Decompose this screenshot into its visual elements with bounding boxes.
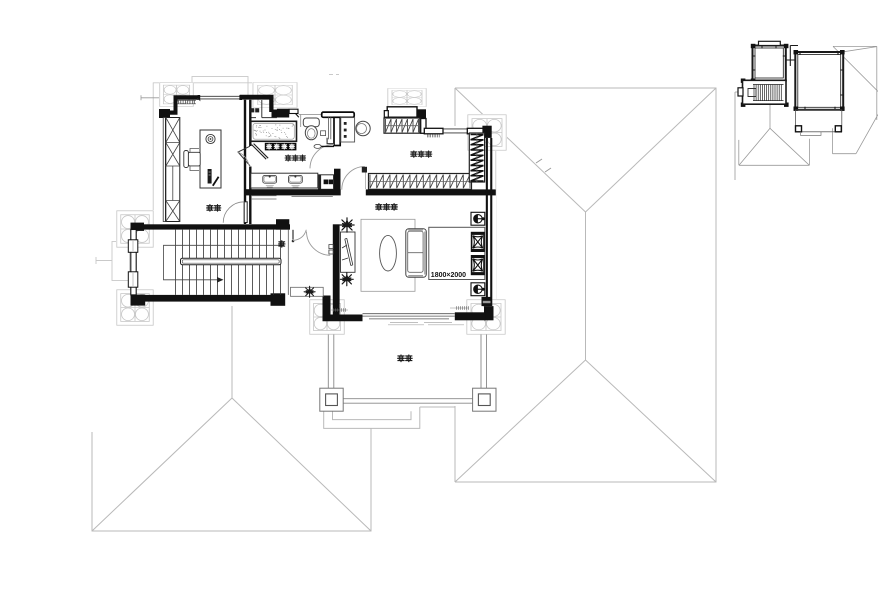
- svg-text:1800×2000: 1800×2000: [431, 272, 466, 279]
